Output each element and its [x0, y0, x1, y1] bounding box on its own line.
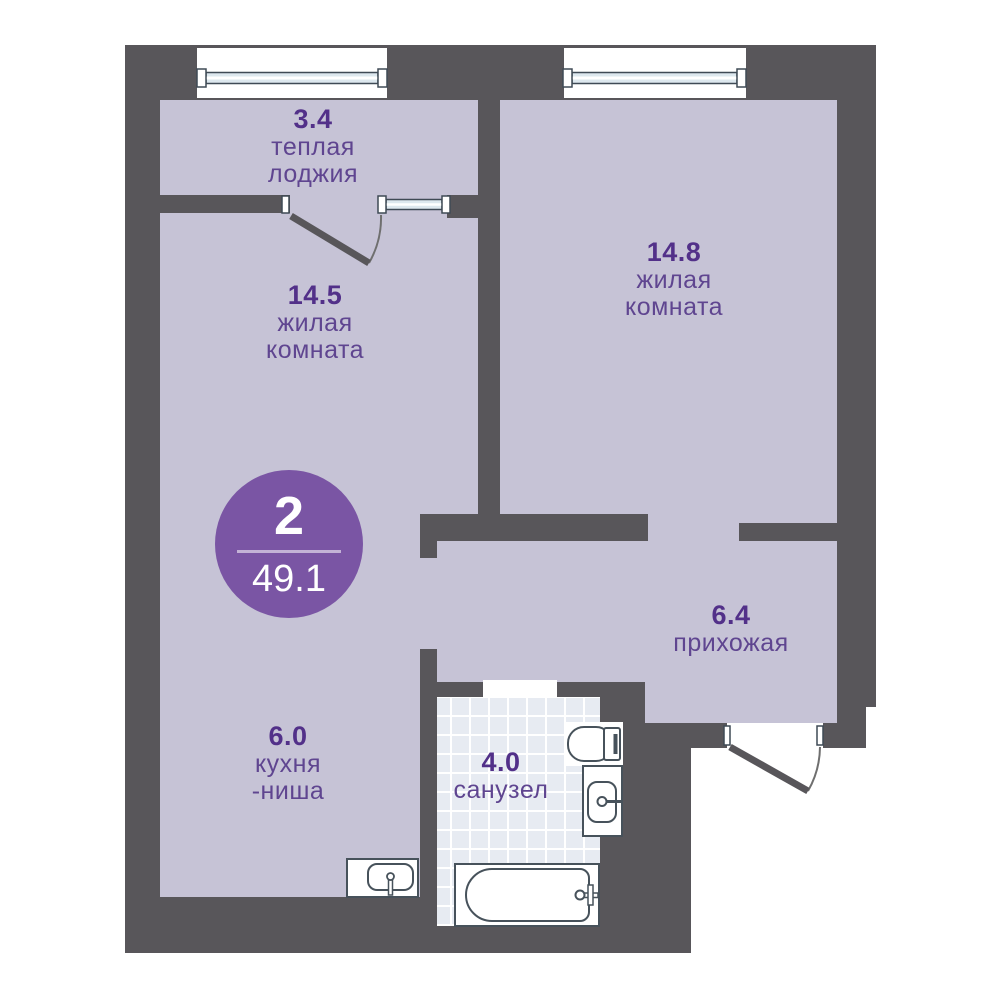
wall-center-vertical [478, 100, 500, 517]
wall-left [125, 45, 160, 953]
room-area: 14.8 [625, 237, 723, 267]
wall-entry-column [645, 748, 691, 953]
wall-right [837, 45, 876, 707]
wall-loggia-bottom [160, 195, 290, 213]
room-name-line: санузел [453, 777, 548, 804]
entry-door-opening [727, 723, 820, 748]
room-name-line: -ниша [252, 778, 325, 805]
room-area: 6.4 [673, 600, 788, 630]
wall-bathroom-right [600, 682, 645, 953]
wall-bathroom-top-left [437, 682, 483, 697]
wall-kitchen-vertical [420, 649, 437, 897]
room-label-hallway: 6.4 прихожая [673, 600, 788, 657]
room-name-line: лоджия [268, 161, 358, 188]
room-name-line: комната [625, 294, 723, 321]
room-name-line: жилая [266, 310, 364, 337]
wall-living2-hall-right [739, 523, 837, 541]
floor-plan: 3.4 теплая лоджия 14.5 жилая комната 14.… [0, 0, 1000, 1000]
badge-rooms-count: 2 [274, 489, 304, 543]
wall-kitchen-stub [420, 541, 437, 558]
room-label-bathroom: 4.0 санузел [453, 747, 548, 804]
wall-living2-hall-left [420, 514, 648, 541]
room-area: 4.0 [453, 747, 548, 777]
room-area: 3.4 [268, 104, 358, 134]
area-badge: 2 49.1 [215, 470, 363, 618]
room-area: 14.5 [266, 280, 364, 310]
wall-bathroom-top-right [557, 682, 600, 697]
room-label-loggia: 3.4 теплая лоджия [268, 104, 358, 188]
room-area: 6.0 [252, 721, 325, 751]
room-name-line: кухня [252, 751, 325, 778]
room-name-line: прихожая [673, 630, 788, 657]
room-label-kitchen: 6.0 кухня -ниша [252, 721, 325, 805]
wall-bottom-left [125, 897, 437, 953]
wall-entry-right-jamb [823, 723, 866, 748]
room-label-living1: 14.5 жилая комната [266, 280, 364, 364]
bathroom-door-opening [483, 680, 557, 697]
wall-bottom-bathroom [437, 926, 600, 953]
room-name-line: теплая [268, 134, 358, 161]
badge-total-area: 49.1 [252, 559, 326, 599]
wall-entry-left [645, 723, 727, 748]
badge-divider [237, 550, 341, 553]
window-recess-right [564, 48, 746, 98]
floor-bathroom-tiles [437, 682, 600, 926]
room-name-line: комната [266, 337, 364, 364]
room-label-living2: 14.8 жилая комната [625, 237, 723, 321]
room-name-line: жилая [625, 267, 723, 294]
wall-right-step [837, 707, 866, 723]
window-recess-left [197, 48, 387, 98]
